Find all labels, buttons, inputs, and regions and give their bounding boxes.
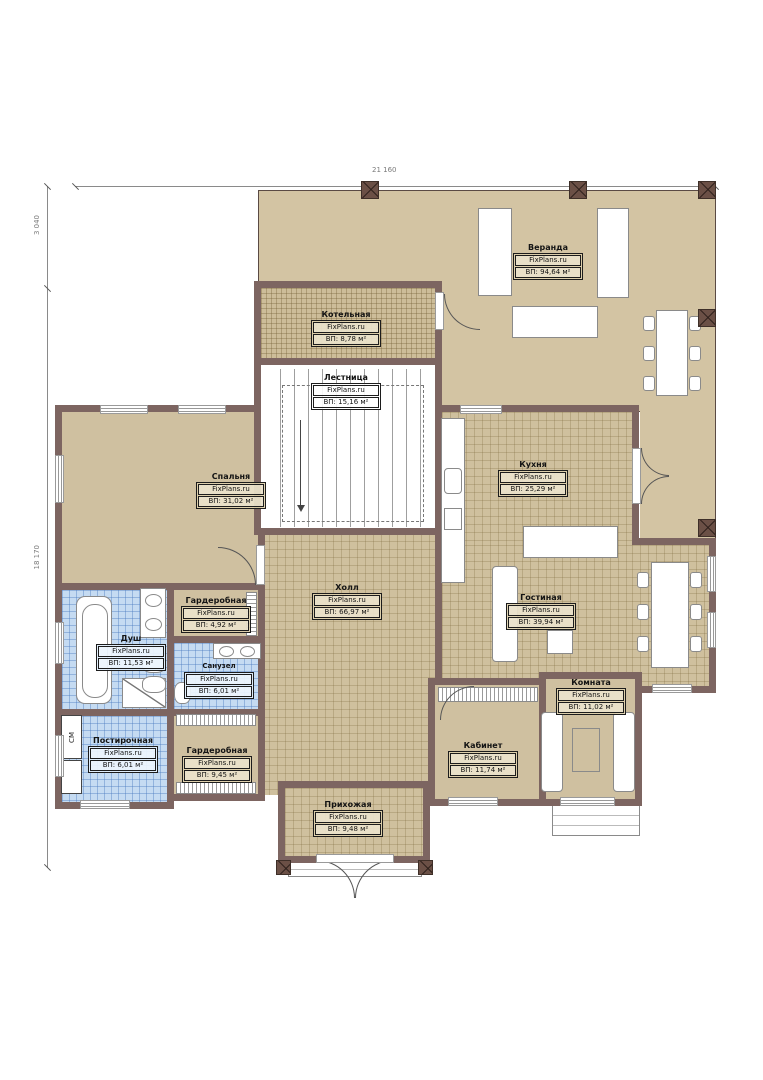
sofa: [613, 712, 635, 792]
veranda-bench: [512, 306, 598, 338]
window: [448, 797, 498, 806]
room-name: Прихожая: [313, 800, 383, 809]
kitchen-sink: [444, 468, 462, 494]
bidet: [142, 676, 166, 693]
kitchen-stove: [444, 508, 462, 530]
room-name: Гардеробная: [182, 746, 252, 755]
sink: [145, 618, 162, 631]
dimension-left-upper: 3 040: [33, 215, 41, 235]
dryer: [61, 760, 82, 794]
room-name: Санузел: [184, 662, 254, 671]
sink: [145, 594, 162, 607]
brand-fixplans: FixPlans.ru: [183, 608, 249, 619]
room-name: Гостиная: [506, 593, 576, 602]
room-label-garderobnaya-1: Гардеробная FixPlans.ru ВП: 4,92 м²: [181, 596, 251, 633]
rear-porch: [552, 806, 640, 836]
window: [707, 612, 716, 648]
room-label-komnata: Комната FixPlans.ru ВП: 11,02 м²: [556, 678, 626, 715]
dining-chair: [637, 572, 649, 588]
room-name: Холл: [312, 583, 382, 592]
room-area: ВП: 6,01 м²: [186, 686, 252, 697]
window: [55, 622, 64, 664]
room-name: Постирочная: [88, 736, 158, 745]
room-label-sanuzel: Санузел FixPlans.ru ВП: 6,01 м²: [184, 662, 254, 699]
room-label-kabinet: Кабинет FixPlans.ru ВП: 11,74 м²: [448, 741, 518, 778]
dimension-left-lower: 18 170: [33, 545, 41, 570]
column-post: [569, 181, 587, 199]
room-label-gostinaya: Гостиная FixPlans.ru ВП: 39,94 м²: [506, 593, 576, 630]
room-label-veranda: Веранда FixPlans.ru ВП: 94,64 м²: [513, 243, 583, 280]
room-area: ВП: 6,01 м²: [90, 760, 156, 771]
column-post: [361, 181, 379, 199]
stair-direction-line: [300, 420, 301, 505]
room-name: Гардеробная: [181, 596, 251, 605]
brand-fixplans: FixPlans.ru: [313, 385, 379, 396]
room-name: Котельная: [311, 310, 381, 319]
room-name: Веранда: [513, 243, 583, 252]
veranda-chair: [689, 376, 701, 391]
brand-fixplans: FixPlans.ru: [508, 605, 574, 616]
window: [560, 797, 615, 806]
column-post: [698, 519, 716, 537]
coffee-table: [547, 630, 573, 654]
room-area: ВП: 25,29 м²: [500, 484, 566, 495]
room-label-holl: Холл FixPlans.ru ВП: 66,97 м²: [312, 583, 382, 620]
brand-fixplans: FixPlans.ru: [198, 484, 264, 495]
room-area: ВП: 15,16 м²: [313, 397, 379, 408]
room-name: Лестница: [311, 373, 381, 382]
brand-fixplans: FixPlans.ru: [315, 812, 381, 823]
brand-fixplans: FixPlans.ru: [184, 758, 250, 769]
kitchen-counter: [441, 418, 465, 583]
sink: [240, 646, 255, 657]
dining-table: [651, 562, 689, 668]
veranda-bench: [597, 208, 629, 298]
brand-fixplans: FixPlans.ru: [450, 753, 516, 764]
room-area: ВП: 9,48 м²: [315, 824, 381, 835]
table: [572, 728, 600, 772]
dining-chair: [690, 604, 702, 620]
veranda-dining-table: [656, 310, 688, 396]
room-area: ВП: 94,64 м²: [515, 267, 581, 278]
room-area: ВП: 11,53 м²: [98, 658, 164, 669]
room-label-spalnya: Спальня FixPlans.ru ВП: 31,02 м²: [196, 472, 266, 509]
brand-fixplans: FixPlans.ru: [558, 690, 624, 701]
room-area: ВП: 31,02 м²: [198, 496, 264, 507]
veranda-chair: [643, 346, 655, 361]
window: [100, 405, 148, 414]
window-kitchen-top: [460, 405, 502, 414]
room-name: Кабинет: [448, 741, 518, 750]
sink: [219, 646, 234, 657]
dimension-top-width: 21 160: [372, 166, 397, 174]
door-gap-bedroom: [256, 545, 265, 585]
window: [178, 405, 226, 414]
porch-post: [276, 860, 291, 875]
window: [652, 684, 692, 693]
wardrobe-rack: [176, 782, 256, 794]
room-label-prihozhaya: Прихожая FixPlans.ru ВП: 9,48 м²: [313, 800, 383, 837]
dining-chair: [637, 636, 649, 652]
sofa: [541, 712, 563, 792]
brand-fixplans: FixPlans.ru: [515, 255, 581, 266]
room-label-lestnitsa: Лестница FixPlans.ru ВП: 15,16 м²: [311, 373, 381, 410]
door-gap-kotelnaya: [435, 292, 444, 330]
room-area: ВП: 11,74 м²: [450, 765, 516, 776]
room-area: ВП: 66,97 м²: [314, 607, 380, 618]
window: [55, 735, 64, 777]
room-label-kotelnaya: Котельная FixPlans.ru ВП: 8,78 м²: [311, 310, 381, 347]
room-name: Комната: [556, 678, 626, 687]
room-area: ВП: 39,94 м²: [508, 617, 574, 628]
room-area: ВП: 8,78 м²: [313, 334, 379, 345]
window: [707, 556, 716, 592]
stair-direction-arrow: [297, 505, 305, 512]
washing-machine-label: СМ: [68, 732, 76, 743]
room-area: ВП: 11,02 м²: [558, 702, 624, 713]
window: [55, 455, 64, 503]
dining-chair: [637, 604, 649, 620]
entry-porch: [288, 863, 422, 877]
window: [80, 800, 130, 809]
kitchen-island: [523, 526, 618, 558]
column-post: [698, 181, 716, 199]
room-area: ВП: 9,45 м²: [184, 770, 250, 781]
dining-chair: [690, 572, 702, 588]
brand-fixplans: FixPlans.ru: [500, 472, 566, 483]
room-label-kuhnya: Кухня FixPlans.ru ВП: 25,29 м²: [498, 460, 568, 497]
room-label-postirochnaya: Постирочная FixPlans.ru ВП: 6,01 м²: [88, 736, 158, 773]
door-gap-french: [632, 448, 641, 504]
dining-chair: [690, 636, 702, 652]
porch-post: [418, 860, 433, 875]
veranda-chair: [689, 346, 701, 361]
room-name: Душ: [96, 634, 166, 643]
wardrobe-rack: [176, 714, 256, 726]
room-name: Спальня: [196, 472, 266, 481]
brand-fixplans: FixPlans.ru: [314, 595, 380, 606]
veranda-chair: [643, 376, 655, 391]
door-gap-entry: [316, 854, 394, 863]
brand-fixplans: FixPlans.ru: [98, 646, 164, 657]
room-area: ВП: 4,92 м²: [183, 620, 249, 631]
brand-fixplans: FixPlans.ru: [90, 748, 156, 759]
column-post: [698, 309, 716, 327]
room-name: Кухня: [498, 460, 568, 469]
dimension-line-top: [75, 186, 716, 187]
brand-fixplans: FixPlans.ru: [313, 322, 379, 333]
room-label-garderobnaya-2: Гардеробная FixPlans.ru ВП: 9,45 м²: [182, 746, 252, 783]
washing-machine: СМ: [61, 715, 82, 759]
veranda-bench: [478, 208, 512, 296]
floor-plan: 21 160 3 040 18 170: [0, 0, 763, 1080]
veranda-chair: [643, 316, 655, 331]
room-label-dush: Душ FixPlans.ru ВП: 11,53 м²: [96, 634, 166, 671]
brand-fixplans: FixPlans.ru: [186, 674, 252, 685]
